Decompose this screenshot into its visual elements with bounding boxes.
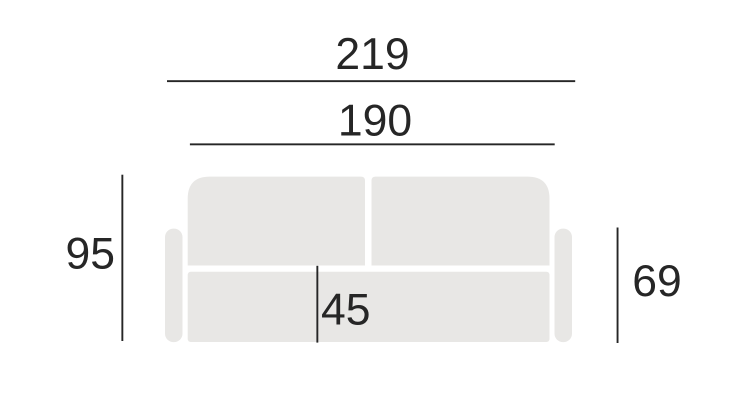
svg-text:95: 95 xyxy=(66,229,116,278)
svg-text:190: 190 xyxy=(338,96,412,145)
svg-text:219: 219 xyxy=(335,30,409,79)
svg-text:45: 45 xyxy=(321,285,371,334)
svg-text:69: 69 xyxy=(632,257,682,306)
